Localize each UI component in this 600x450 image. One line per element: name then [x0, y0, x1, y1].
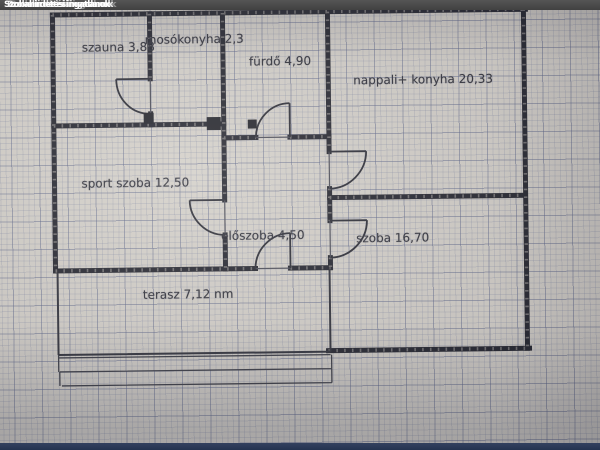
door-sport-szoba — [190, 200, 225, 235]
wall-bottom-szoba — [329, 348, 530, 350]
pillars — [144, 112, 257, 131]
floorplan-drawing — [0, 10, 600, 443]
terasz-steps — [59, 352, 332, 386]
app-title: Szobahirdetési ingatlanok — [0, 0, 109, 10]
room-label-nappali-konyha: nappali+ konyha 20,33 — [353, 73, 493, 88]
door-szauna — [116, 79, 150, 114]
room-label-terasz: terasz 7,12 nm — [143, 288, 234, 302]
room-label-szoba: szoba 16,70 — [356, 231, 429, 245]
screenshot-root: Szobahirdetési ingatlanok — [0, 0, 600, 450]
door-furdo — [256, 103, 290, 137]
room-label-mosokonyha: mosókonyha 2,3 — [145, 33, 244, 47]
bottom-bar — [0, 443, 600, 450]
floorplan-plan: szauna 3,88 mosókonyha 2,3 fürdő 4,90 na… — [0, 10, 600, 443]
wall-szauna-bottom — [54, 124, 224, 126]
wall-right — [523, 10, 527, 348]
room-label-furdo: fürdő 4,90 — [249, 55, 311, 69]
terasz-outline — [58, 270, 331, 355]
room-label-eloszoba: előszoba 4,50 — [221, 229, 305, 243]
room-label-sport-szoba: sport szoba 12,50 — [81, 176, 189, 190]
door-nappali — [329, 151, 366, 188]
top-title-bar: Szobahirdetési ingatlanok — [0, 0, 600, 10]
floorplan-photo: szauna 3,88 mosókonyha 2,3 fürdő 4,90 na… — [0, 10, 600, 443]
wall-left — [52, 15, 55, 271]
